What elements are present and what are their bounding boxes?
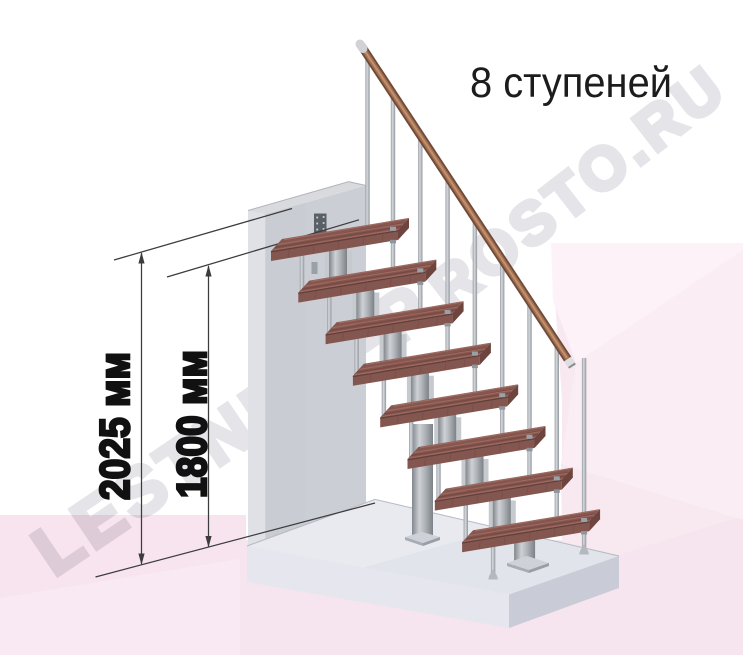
svg-text:1800 мм: 1800 мм: [168, 350, 215, 498]
svg-text:8 ступеней: 8 ступеней: [470, 59, 672, 107]
svg-text:2025 мм: 2025 мм: [91, 352, 138, 500]
